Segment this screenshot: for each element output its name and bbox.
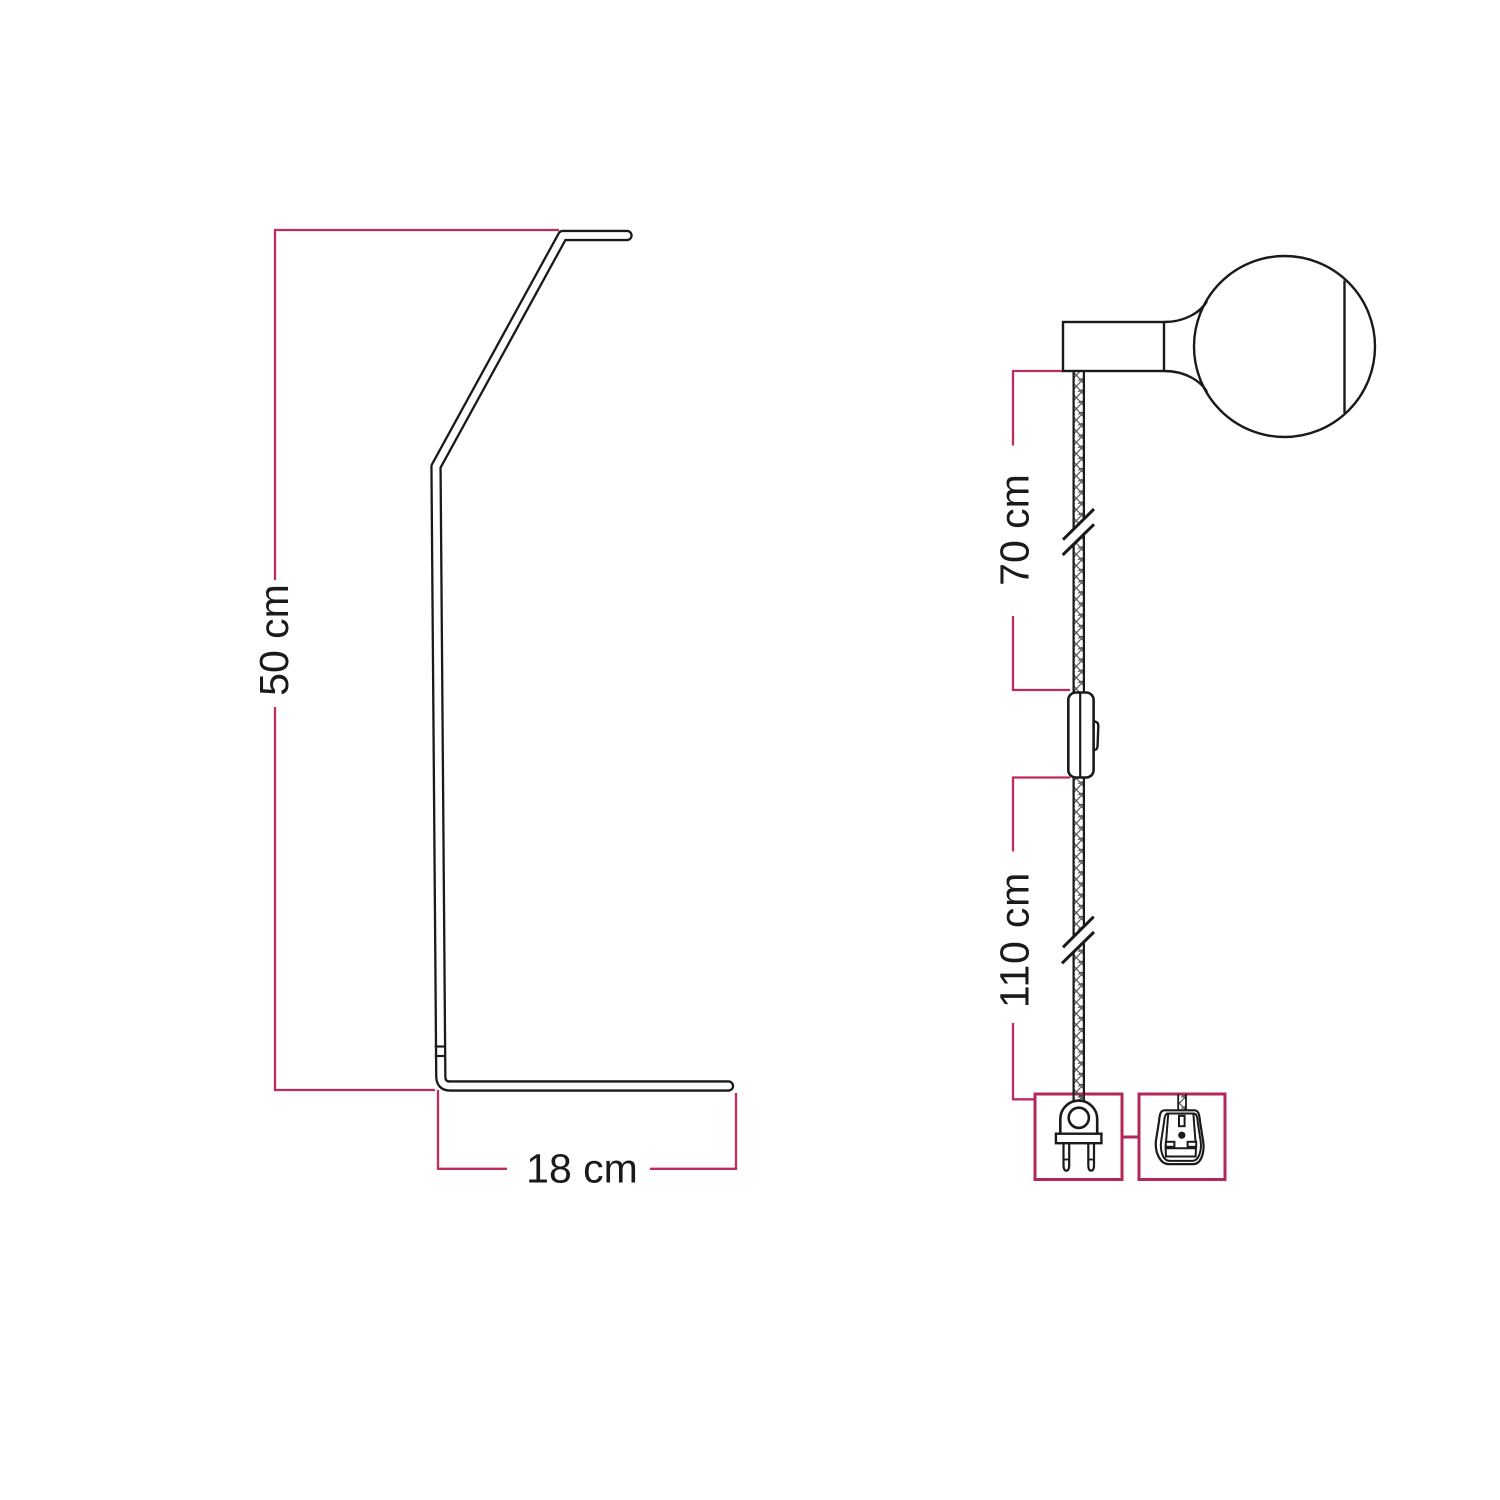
svg-text:50 cm: 50 cm xyxy=(251,584,297,696)
svg-text:18 cm: 18 cm xyxy=(526,1146,638,1192)
svg-text:110 cm: 110 cm xyxy=(992,872,1038,1008)
svg-text:70 cm: 70 cm xyxy=(992,474,1038,586)
